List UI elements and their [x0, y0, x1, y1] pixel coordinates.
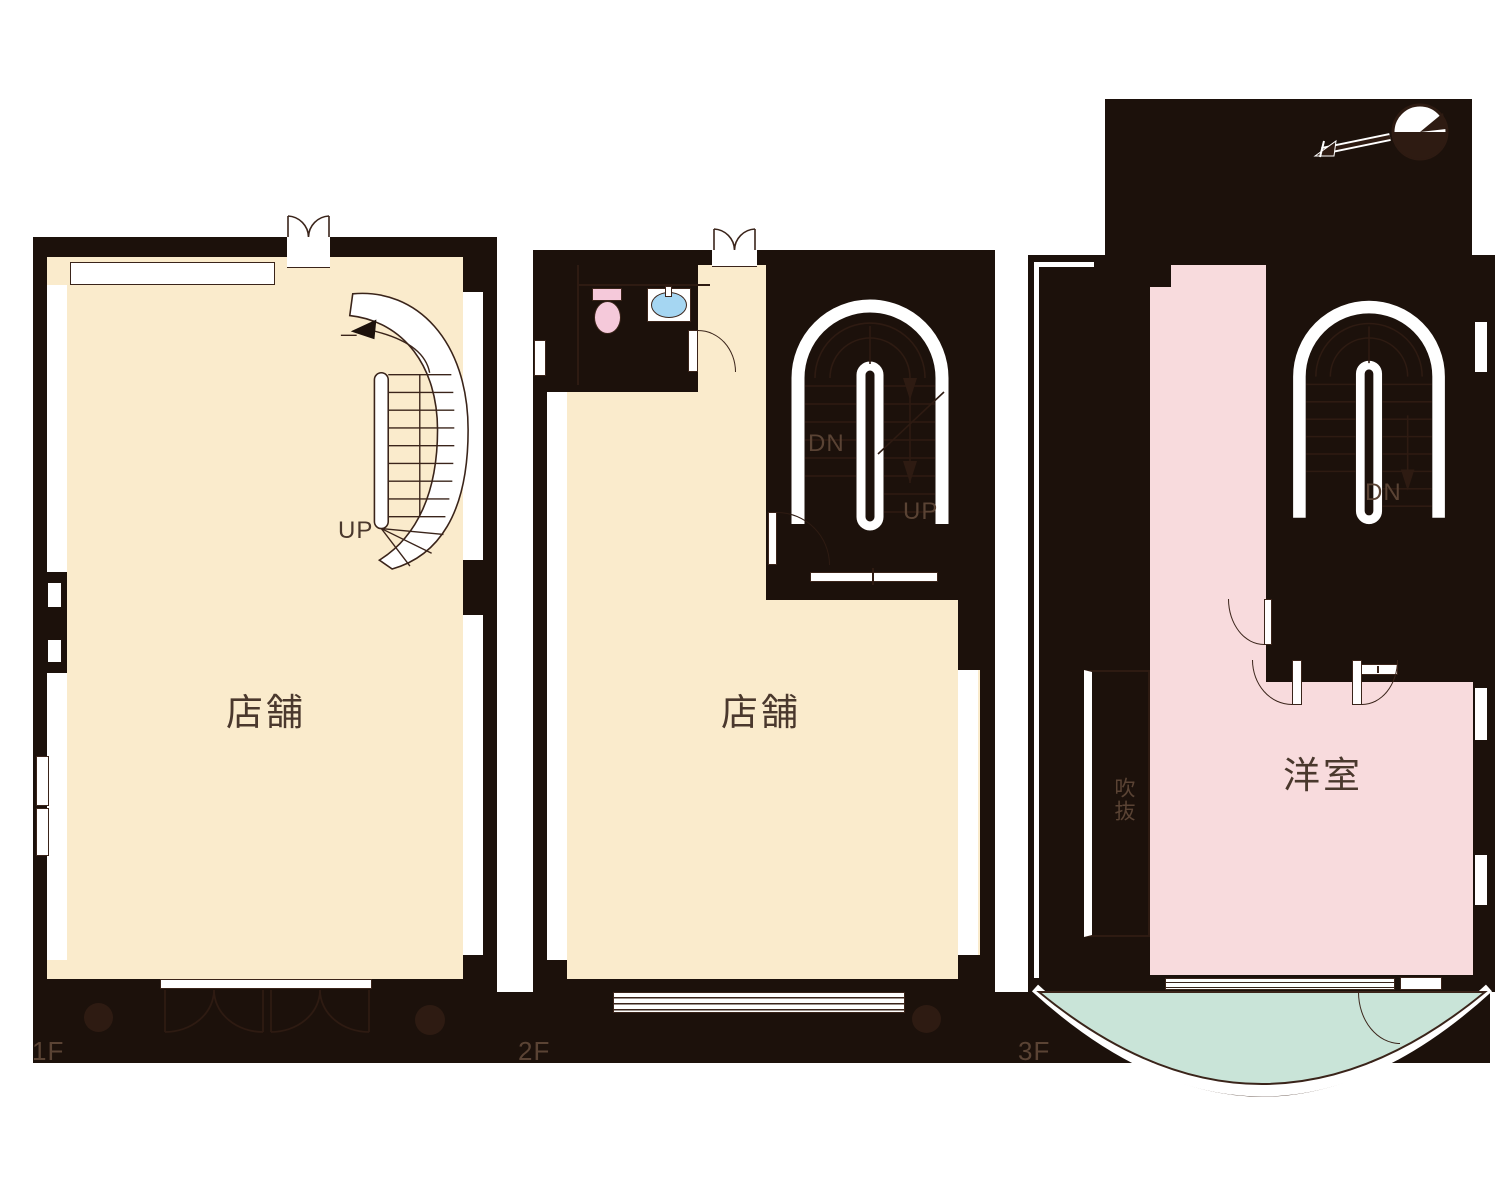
- stairwell-2f-opening: [810, 572, 938, 582]
- stair-2f-door-leaf: [768, 512, 777, 565]
- floorplan-1f: UP 店舗: [33, 237, 497, 992]
- wall-3f-left-line: [1034, 262, 1039, 978]
- room-2f-label: 店舗: [661, 682, 861, 736]
- door-2f-top-opening: [712, 250, 757, 267]
- floor-label-1f: 1F: [32, 1036, 64, 1067]
- toilet-icon: [594, 301, 621, 334]
- entrance-doors-icon: [162, 990, 372, 1036]
- stair-2f-up-label: UP: [903, 498, 938, 526]
- balcony-icon: [1037, 986, 1490, 1104]
- window-1f-left-sash: [36, 756, 49, 806]
- u-stair-icon: [780, 268, 960, 528]
- void-shaft: 吹抜: [1084, 670, 1150, 937]
- toilet-door-leaf: [688, 330, 698, 372]
- stair-3f-door-leaf: [1264, 599, 1272, 645]
- window-2f-bottom: [613, 992, 905, 1013]
- room-3f-door-leaf: [1292, 660, 1302, 705]
- wall-3f-left-line: [1034, 262, 1094, 267]
- pillar-icon: [415, 1005, 445, 1035]
- floor-label-3f: 3F: [1018, 1036, 1050, 1067]
- window-3f-right: [1475, 688, 1487, 740]
- room-3f-western: [1150, 682, 1473, 975]
- double-door-up-icon: [287, 215, 330, 239]
- window-2f-right: [958, 670, 978, 955]
- room-3f-label: 洋室: [1193, 745, 1453, 799]
- pillar-icon: [84, 1003, 113, 1032]
- window-2f-left: [547, 392, 567, 960]
- void-label: 吹抜: [1108, 777, 1138, 823]
- wall-niche: [48, 640, 61, 662]
- wall-2f-left-pier: [547, 960, 567, 992]
- window-2f-left-sash: [534, 340, 546, 376]
- toilet-partition: [577, 284, 710, 286]
- window-3f-right: [1475, 855, 1487, 905]
- window-1f-top: [70, 262, 275, 285]
- floorplan-3f: 吹抜 洋室 DN: [1028, 99, 1495, 1096]
- stairwell-2f: [766, 255, 980, 600]
- window-3f-right: [1475, 322, 1487, 372]
- stair-3f-dn-label: DN: [1365, 479, 1402, 507]
- floor-label-2f: 2F: [518, 1036, 550, 1067]
- entrance-1f-sill: [160, 979, 372, 989]
- window-1f-left-sash: [36, 808, 49, 856]
- pillar-icon: [912, 1005, 941, 1033]
- room-1f-label: 店舗: [166, 682, 366, 736]
- sink-faucet-icon: [665, 286, 672, 297]
- door-1f-top-opening: [287, 237, 330, 268]
- floorplan-2f: DN UP 店舗: [533, 250, 995, 992]
- wall-1f-right-pier: [463, 955, 483, 979]
- toilet-partition: [577, 265, 579, 385]
- compass-north-icon: [1310, 99, 1460, 165]
- toilet-room: [547, 265, 698, 392]
- toilet-icon: [592, 288, 622, 301]
- corridor-3f-notch: [1171, 265, 1266, 287]
- stair-2f-dn-label: DN: [808, 430, 845, 458]
- stair-1f-up-label: UP: [338, 517, 373, 545]
- room-3f-door2-leaf: [1352, 660, 1362, 705]
- opening-tick: [872, 568, 874, 585]
- floorplan-sheet: UP 店舗: [0, 0, 1500, 1191]
- wall-niche: [48, 583, 61, 607]
- wall-2f-right-pier: [958, 955, 980, 992]
- double-door-up-icon: [712, 228, 757, 252]
